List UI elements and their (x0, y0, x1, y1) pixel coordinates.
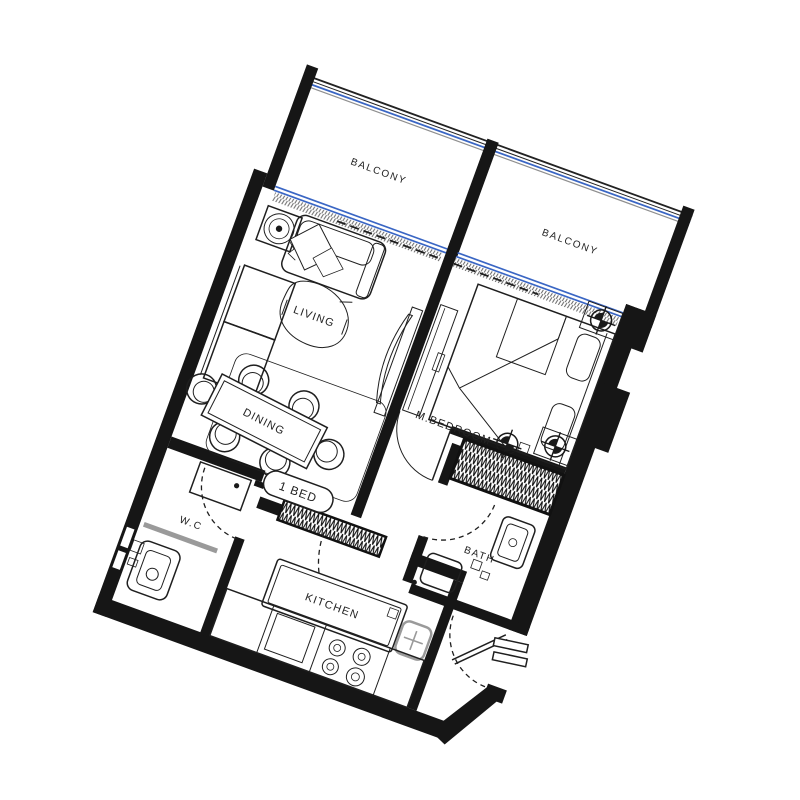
walls (91, 60, 698, 763)
wc-counter-edge (144, 524, 217, 551)
window-sill-hatch (453, 258, 620, 326)
label-tick (340, 298, 353, 306)
balcony-divider-wall (446, 139, 499, 258)
balcony-left-wall (262, 64, 318, 190)
table-lamp-icon (275, 225, 283, 233)
balcony-left-label: BALCONY (349, 157, 408, 188)
wc-toilet-bowl (135, 549, 172, 592)
bath-sink-basin (497, 523, 529, 562)
living-label: LIVING (292, 304, 337, 330)
fixture-box (480, 571, 490, 580)
balcony-right-wall (640, 206, 694, 329)
blanket-fold (443, 367, 465, 388)
blanket-edge (558, 316, 566, 339)
fixture-box (127, 557, 138, 567)
bath-door-swing (423, 484, 495, 556)
kitchen-hatch-cabinet (277, 500, 386, 557)
balcony-right-label: BALCONY (540, 227, 599, 258)
bath-sink (489, 515, 537, 570)
wc-label: W.C (178, 515, 204, 533)
wc-basin-drain-dot (233, 482, 240, 489)
pillow (564, 332, 602, 383)
blanket-panel (496, 299, 566, 375)
wc-toilet-drain (145, 567, 160, 582)
wc-toilet (125, 539, 182, 602)
balcony-railing (307, 77, 692, 225)
entry-threshold (490, 638, 530, 667)
sofa-seat (224, 265, 295, 340)
floor-plan-canvas: LIVING DINING (0, 0, 800, 800)
wc-top-wall (167, 437, 265, 482)
bath-sink-drain (508, 538, 518, 548)
entry-door-leaf (452, 620, 506, 674)
floor-plan-svg: LIVING DINING (0, 0, 800, 800)
sofa-armrest (355, 242, 385, 299)
wc-right-wall (200, 536, 245, 637)
